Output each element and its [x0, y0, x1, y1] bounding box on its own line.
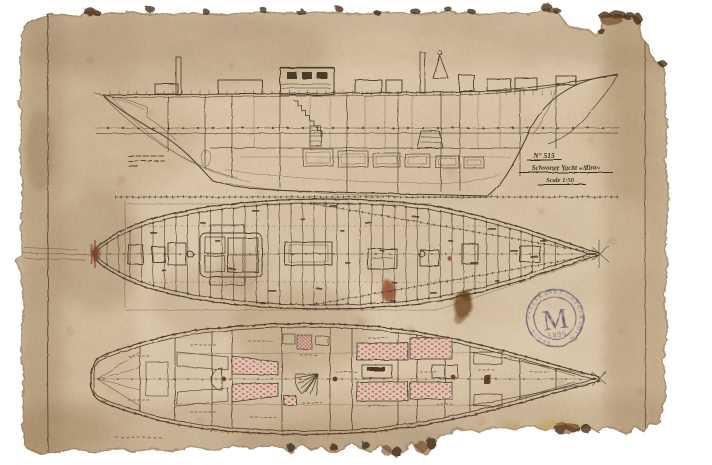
svg-text:Scale 1:50: Scale 1:50 [546, 177, 575, 184]
svg-text:Schooner Yacht «Mira»: Schooner Yacht «Mira» [532, 164, 601, 172]
svg-text:N° 515: N° 515 [532, 151, 555, 160]
